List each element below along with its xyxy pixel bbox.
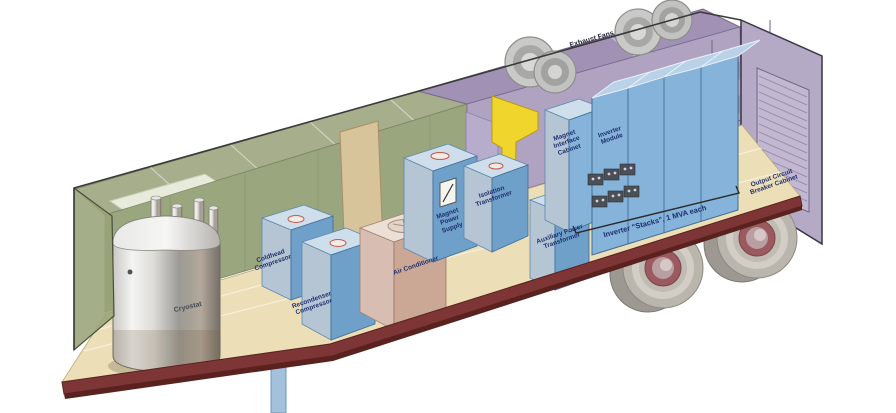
cryostat-port — [128, 270, 133, 275]
isolation-transformer — [464, 154, 528, 252]
trailer-cutaway-illustration: Cryostat Coldhead Compressor Recondenser… — [0, 0, 896, 413]
trailer-scene — [0, 0, 896, 413]
